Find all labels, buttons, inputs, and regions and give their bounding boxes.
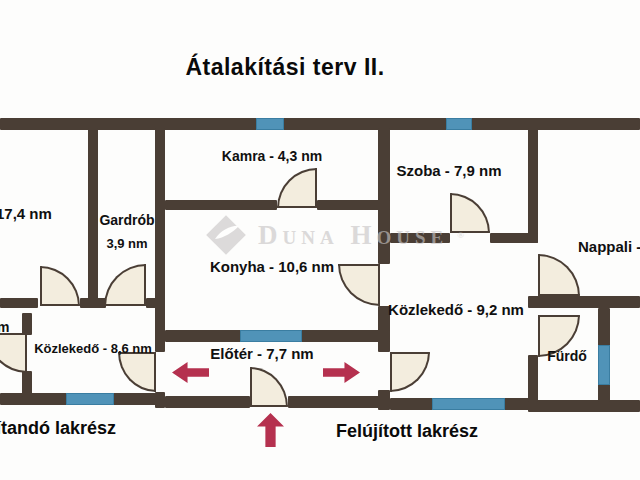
room-area-gardrob: 3,9 nm (106, 237, 147, 251)
wall (0, 298, 38, 308)
room-label-szoba: Szoba - 7,9 nm (396, 163, 501, 180)
wall (317, 200, 390, 210)
duna-house-logo-icon (203, 212, 249, 258)
room-label-furdo: Fürdő (547, 349, 587, 364)
floor-plan: Átalakítási terv II. (0, 0, 640, 480)
window (598, 345, 610, 385)
registered-mark: ® (457, 230, 464, 240)
wall (528, 128, 538, 243)
hall-new-door (390, 352, 430, 392)
wall (22, 313, 32, 335)
caption-right: Felújított lakrész (336, 421, 478, 442)
wall (528, 355, 538, 402)
room-label-gardrob: Gardrób (99, 213, 154, 228)
room-label-left: 17,4 nm (0, 206, 52, 223)
wall (155, 128, 165, 352)
window (66, 393, 114, 405)
room-label-kamra: Kamra - 4,3 nm (222, 149, 322, 164)
caption-left: ítandó lakrész (0, 418, 116, 439)
window (446, 118, 472, 130)
wall (146, 298, 165, 308)
page-title: Átalakítási terv II. (185, 54, 384, 81)
small-room-door (0, 333, 27, 373)
window (256, 118, 284, 130)
arrow-left-icon (172, 362, 209, 383)
watermark-brand: Duna House (258, 220, 448, 251)
room-label-hall-new: Közlekedő - 9,2 nm (388, 302, 524, 319)
wall (22, 371, 32, 397)
wall (165, 200, 277, 210)
wall (80, 298, 106, 308)
nappali-door (538, 254, 580, 296)
room-label-konyha: Konyha - 10,6 nm (210, 259, 334, 276)
gardrob-door (104, 264, 146, 306)
entrance-door (250, 367, 288, 407)
room-label-eloter: Előtér - 7,7 nm (210, 346, 313, 363)
arrow-right-icon (323, 362, 360, 383)
room-label-hall-old: Közlekedő - 8,6 nm (34, 342, 152, 356)
wall (165, 396, 250, 408)
wall (378, 390, 390, 410)
konyha-door (338, 264, 380, 306)
room-label-nappali: Nappali - (578, 239, 640, 256)
wall (528, 400, 640, 412)
wall (288, 396, 390, 408)
room-label-cut: m (0, 320, 9, 335)
window (240, 330, 302, 342)
kamra-door (277, 168, 317, 208)
window (432, 398, 505, 410)
hall-old-door (118, 352, 156, 392)
duna-house-watermark: Duna House ® (203, 212, 464, 258)
wall (490, 233, 538, 243)
wall (155, 392, 165, 408)
arrow-up-icon (257, 413, 284, 447)
wall (528, 296, 640, 308)
left-room-door (40, 266, 80, 306)
wall (88, 128, 98, 308)
